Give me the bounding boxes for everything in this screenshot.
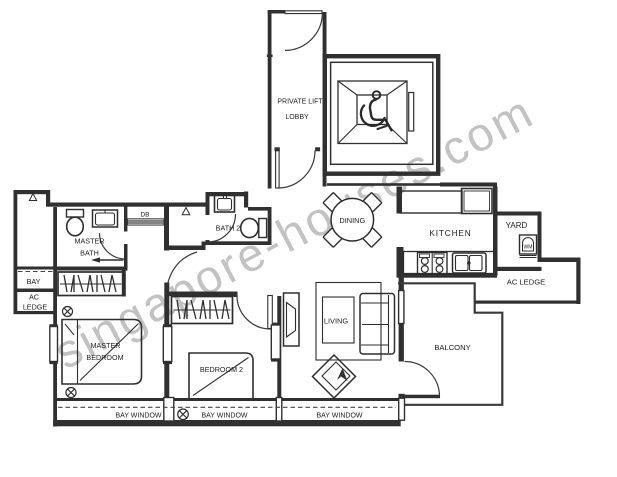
svg-text:BEDROOM 2: BEDROOM 2 xyxy=(200,365,243,374)
svg-text:AC LEDGE: AC LEDGE xyxy=(507,278,545,287)
svg-text:MASTER: MASTER xyxy=(75,237,105,246)
svg-text:BAY WINDOW: BAY WINDOW xyxy=(201,413,247,420)
svg-text:PRIVATE LIFT: PRIVATE LIFT xyxy=(277,99,323,106)
svg-text:DB: DB xyxy=(141,212,150,219)
svg-text:BATH 2: BATH 2 xyxy=(216,224,241,233)
svg-text:KITCHEN: KITCHEN xyxy=(429,229,471,238)
svg-text:LIVING: LIVING xyxy=(324,317,348,326)
svg-text:BEDROOM: BEDROOM xyxy=(86,353,123,362)
svg-text:LEDGE: LEDGE xyxy=(23,303,48,312)
svg-text:MASTER: MASTER xyxy=(91,341,121,350)
svg-text:WM: WM xyxy=(524,245,533,251)
svg-text:BAY: BAY xyxy=(27,277,41,286)
svg-text:BALCONY: BALCONY xyxy=(434,343,470,352)
svg-text:BATH: BATH xyxy=(80,249,99,258)
svg-text:LOBBY: LOBBY xyxy=(285,114,309,121)
svg-text:DINING: DINING xyxy=(339,216,365,225)
svg-text:AC: AC xyxy=(29,293,39,302)
svg-text:BAY WINDOW: BAY WINDOW xyxy=(316,413,362,420)
svg-text:BAY WINDOW: BAY WINDOW xyxy=(115,413,161,420)
svg-text:YARD: YARD xyxy=(506,221,528,230)
